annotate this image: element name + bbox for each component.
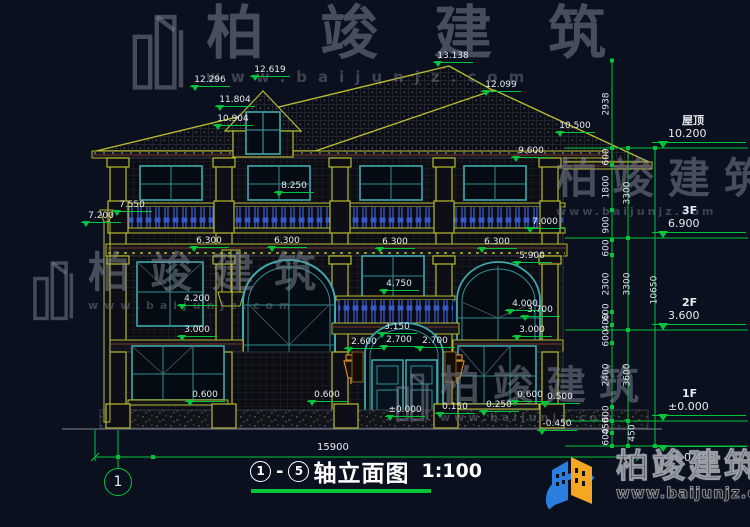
axis-bubble-1: 1: [104, 468, 132, 496]
brand-url: www.baijunjz.com: [616, 484, 750, 502]
brand-logo: 柏竣建筑 www.baijunjz.com: [538, 448, 750, 518]
title-dash: -: [276, 461, 283, 482]
axis-circle-from: 1: [250, 461, 271, 482]
brand-logo-icon: [538, 448, 610, 518]
title-scale: 1:100: [421, 460, 481, 482]
cad-canvas: 柏竣建筑 www.baijunjz.com 柏竣建筑 www.baijunjz.…: [0, 0, 750, 527]
roof: [92, 66, 652, 169]
axis-number: 1: [114, 474, 123, 490]
window-2f-arch-right: [457, 262, 540, 345]
drawing-title: 1 - 5 轴立面图 1:100: [250, 454, 482, 488]
axis-circle-to: 5: [288, 461, 309, 482]
third-floor: [106, 158, 567, 258]
brand-name: 柏竣建筑: [616, 448, 750, 484]
title-underline: [251, 489, 431, 493]
window-1f-right: [455, 346, 539, 409]
window-1f-left: [128, 346, 228, 405]
title-text: 轴立面图: [313, 454, 409, 488]
balustrade: [108, 201, 565, 233]
dormer-window: [225, 91, 301, 157]
